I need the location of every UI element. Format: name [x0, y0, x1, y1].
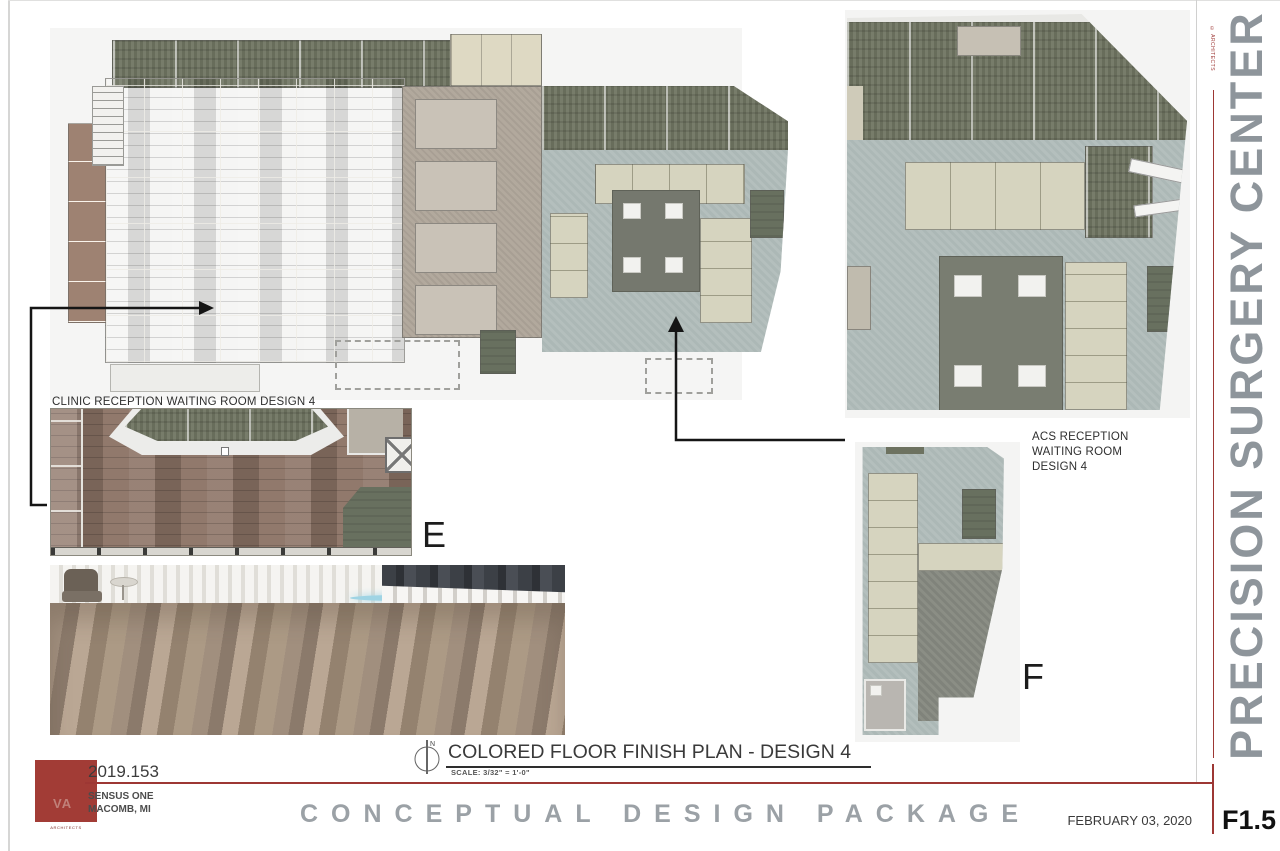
top-frame-line [8, 0, 1280, 1]
plan-seating-column [700, 218, 752, 323]
plan-core-dark [612, 190, 700, 292]
e-elevator [385, 437, 412, 473]
clinic-callout-label: CLINIC RECEPTION WAITING ROOM DESIGN 4 [52, 396, 315, 408]
side-project-title: PRECISION SURGERY CENTER [1216, 6, 1278, 764]
north-label: N [430, 741, 435, 748]
issue-date: FEBRUARY 03, 2020 [1020, 813, 1192, 828]
photo-chair [64, 569, 104, 603]
drawing-sheet: CLINIC RECEPTION WAITING ROOM DESIGN 4 E… [0, 0, 1280, 851]
enlarged-plan-building [847, 14, 1187, 410]
plan-clinic-wing [105, 78, 405, 363]
plan-or-room [415, 285, 497, 335]
side-rule [1213, 90, 1214, 758]
plan-or-room [415, 99, 497, 149]
plan-vestibule [480, 330, 516, 374]
drawing-title: COLORED FLOOR FINISH PLAN - DESIGN 4 [446, 741, 871, 768]
f-cream-band [918, 543, 1006, 571]
enlarged-plan-acs [845, 10, 1190, 418]
enl-core-dark [939, 256, 1063, 412]
plan-vestibule [750, 190, 784, 238]
f-seating-column [868, 473, 918, 663]
titleblock-inner-border [1196, 0, 1197, 782]
f-building [858, 447, 1010, 735]
firm-tagline: ARCHITECTS [35, 825, 97, 830]
e-desk-post [221, 447, 229, 456]
plan-or-room [415, 161, 497, 211]
left-frame-line [8, 0, 10, 851]
detail-e-tag: E [422, 514, 446, 556]
waiting-room-photo [50, 565, 565, 735]
plan-porch [110, 364, 260, 392]
f-gray-region [918, 571, 1010, 721]
project-number: 2019.153 [88, 762, 159, 782]
f-vestibule [962, 489, 996, 539]
north-arrow-icon: N [412, 738, 442, 776]
photo-side-table [110, 577, 136, 603]
plan-dashed-annex [645, 358, 713, 394]
enl-seating-row [905, 162, 1085, 230]
photo-wood-floor [50, 603, 565, 735]
enl-beige-room [847, 266, 871, 330]
acs-label-line: DESIGN 4 [1032, 460, 1129, 475]
plan-cream-rooms-top [450, 34, 542, 86]
project-name: SENSUS ONE [88, 790, 154, 803]
plan-olive-band-right [542, 86, 788, 150]
e-reception-desk-inner [125, 409, 328, 441]
package-title: CONCEPTUAL DESIGN PACKAGE [300, 800, 1000, 829]
copyright-note: © ARCHITECTS [1209, 26, 1215, 71]
detail-f-tag: F [1022, 656, 1044, 698]
plan-waiting-area [542, 150, 788, 352]
acs-callout-label: ACS RECEPTION WAITING ROOM DESIGN 4 [1032, 430, 1129, 475]
sheet-number: F1.5 [1222, 805, 1276, 836]
project-location: MACOMB, MI [88, 803, 151, 816]
plan-or-block [402, 86, 542, 338]
detail-plan-clinic-reception [50, 408, 412, 556]
drawing-scale: SCALE: 3/32" = 1'-0" [451, 768, 530, 777]
e-left-room-column [51, 409, 83, 556]
acs-label-line: WAITING ROOM [1032, 445, 1129, 460]
plan-or-room [415, 223, 497, 273]
titleblock-divider [1212, 764, 1214, 834]
enl-vestibule [1147, 266, 1187, 332]
enl-seating-column [1065, 262, 1127, 410]
f-olive-strip [886, 447, 924, 454]
detail-plan-acs-reception [855, 442, 1020, 742]
titleblock-rule [85, 782, 1212, 784]
e-vestibule [343, 487, 412, 556]
plan-seating-column [550, 213, 588, 298]
plan-dashed-annex [335, 340, 460, 390]
acs-label-line: ACS RECEPTION [1032, 430, 1129, 445]
logo-mark: VA [53, 796, 72, 811]
enl-gray-room [957, 26, 1021, 56]
e-window-sill [51, 547, 412, 556]
f-restroom [864, 679, 906, 731]
plan-stair [92, 86, 124, 166]
main-floor-plan [50, 28, 742, 400]
